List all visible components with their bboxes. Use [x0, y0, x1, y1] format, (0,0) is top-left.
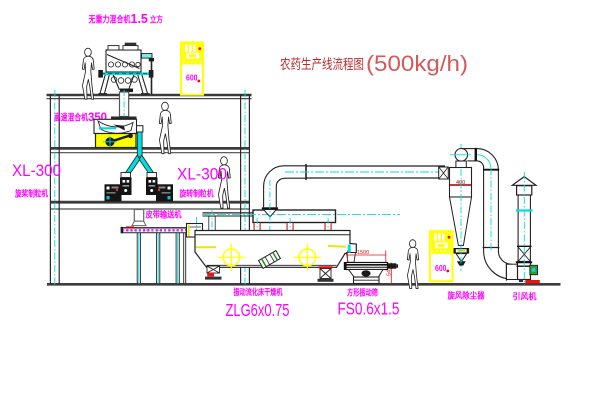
svg-text:旋桨制粒机: 旋桨制粒机 — [14, 189, 48, 199]
svg-text:方形振动筛: 方形振动筛 — [347, 288, 378, 298]
svg-text:600: 600 — [435, 264, 447, 273]
svg-text:(500kg/h): (500kg/h) — [366, 51, 468, 76]
svg-text:FS0.6x1.5: FS0.6x1.5 — [338, 299, 400, 319]
svg-text:600: 600 — [186, 74, 198, 83]
svg-text:旋转制粒机: 旋转制粒机 — [179, 189, 214, 199]
svg-text:XL-300: XL-300 — [12, 161, 61, 180]
svg-text:引风机: 引风机 — [513, 292, 537, 302]
svg-text:旋风除尘器: 旋风除尘器 — [447, 291, 485, 301]
svg-text:皮带输送机: 皮带输送机 — [145, 210, 182, 220]
svg-text:1500: 1500 — [357, 250, 369, 256]
svg-text:农药生产线流程图: 农药生产线流程图 — [280, 57, 364, 72]
svg-text:ZLG6x0.75: ZLG6x0.75 — [226, 300, 290, 320]
svg-text:振动流化床干燥机: 振动流化床干燥机 — [234, 287, 283, 297]
svg-text:无重力混合机1.5立方: 无重力混合机1.5立方 — [88, 12, 164, 26]
svg-text:XL-300: XL-300 — [177, 165, 227, 184]
